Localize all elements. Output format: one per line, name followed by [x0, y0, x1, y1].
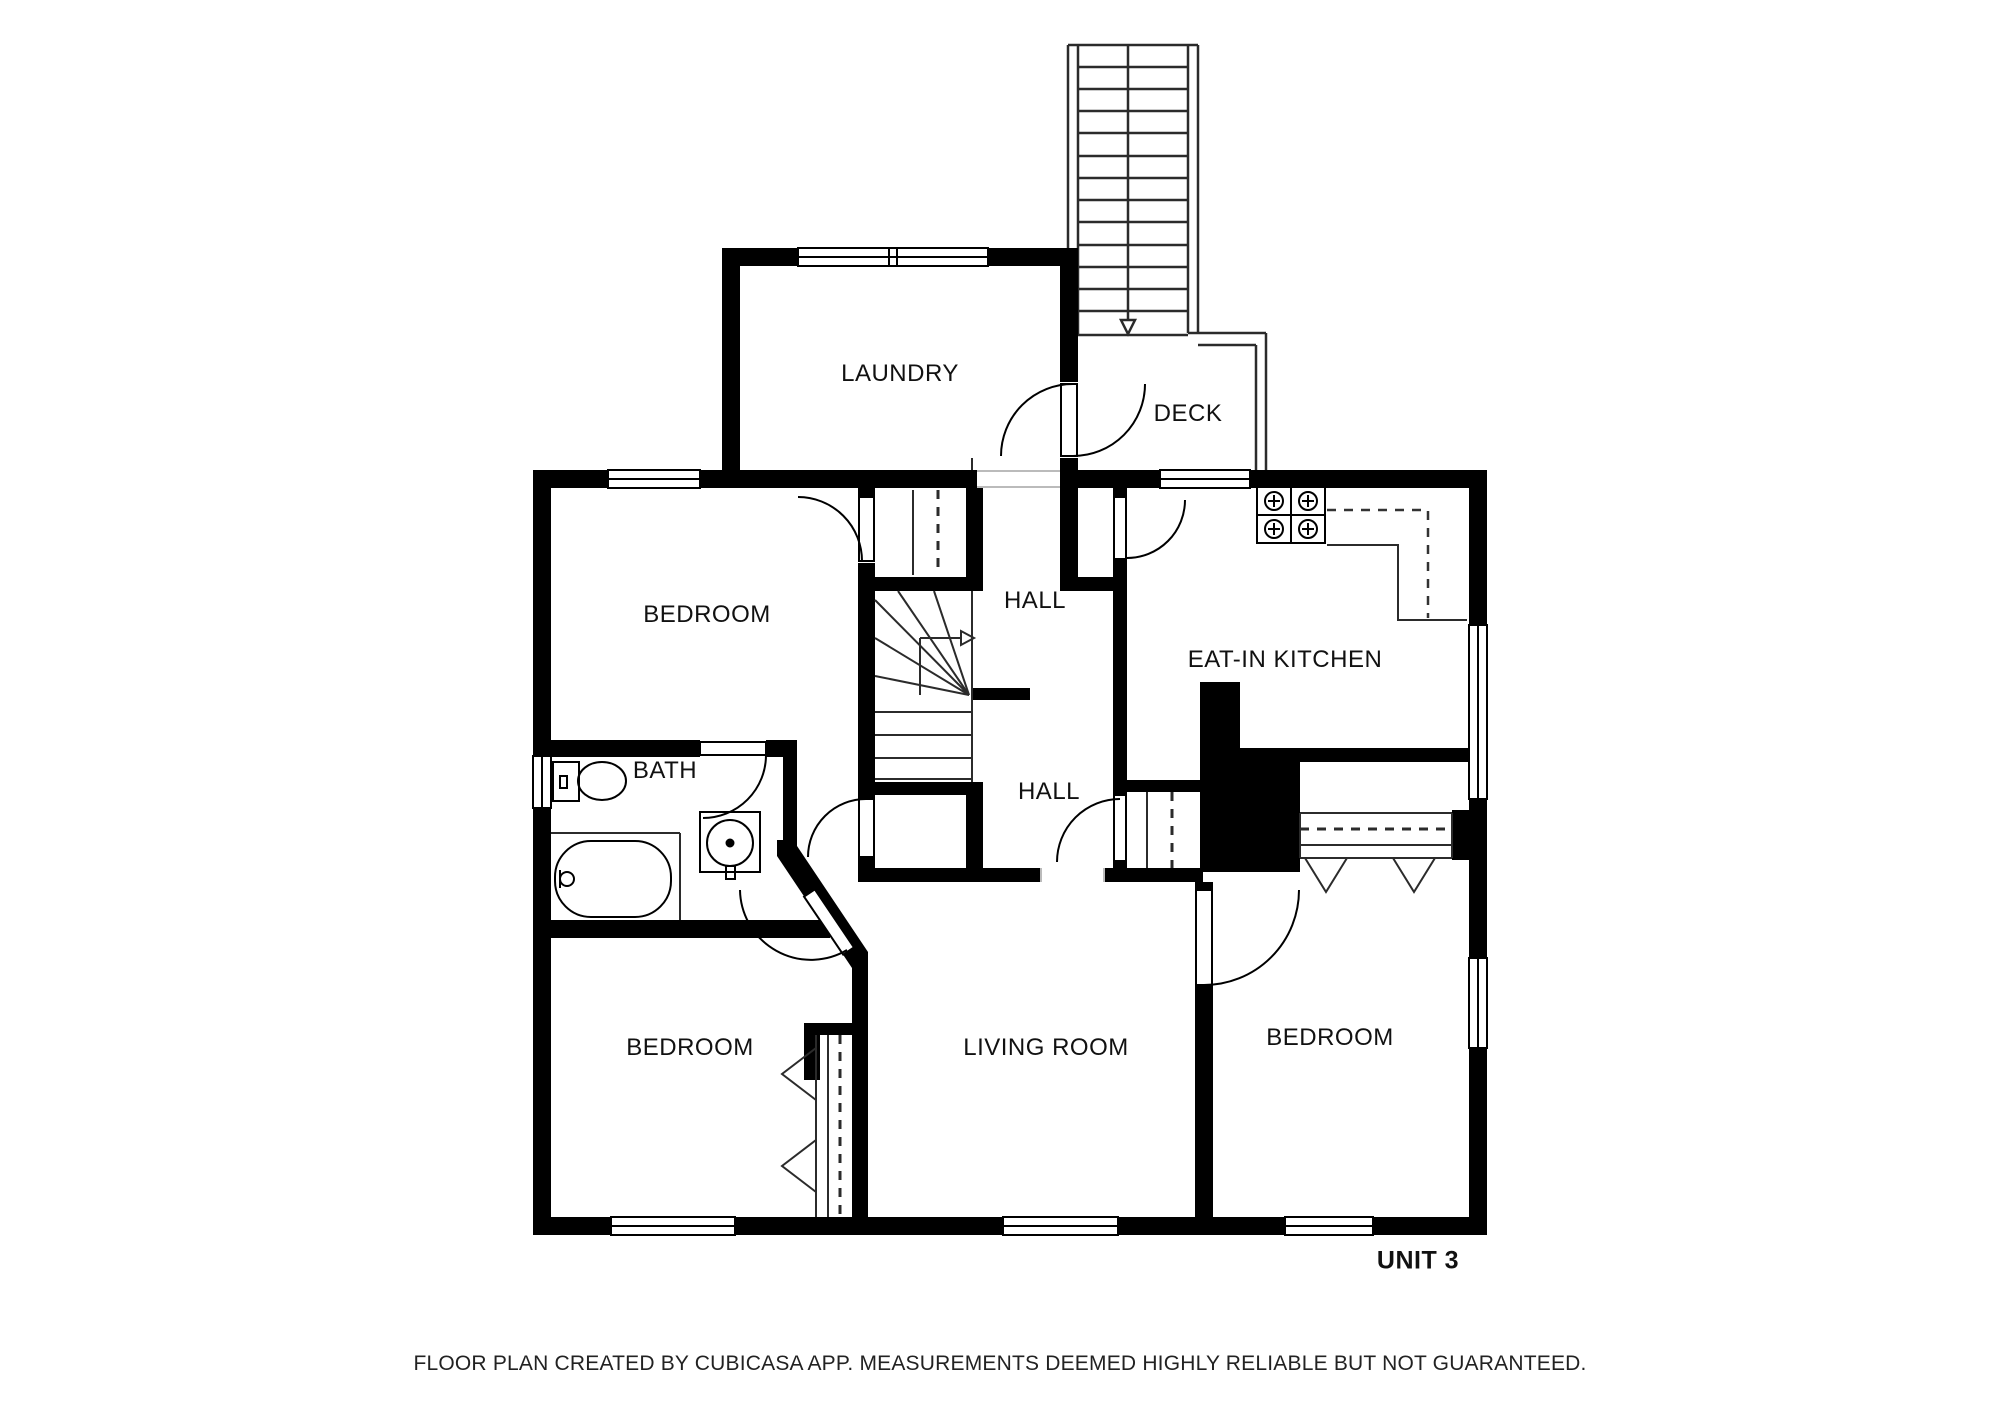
room-label-hall-lower: HALL: [1018, 778, 1080, 806]
door-leaf-kitchen: [1114, 497, 1126, 559]
room-label-kitchen: EAT-IN KITCHEN: [1188, 646, 1383, 674]
door-leaf-hall-closet: [1114, 795, 1126, 861]
window-bath: [533, 756, 551, 808]
room-label-hall-upper: HALL: [1004, 587, 1066, 615]
door-leaf-bedroom-right: [1196, 890, 1212, 985]
door-leaf-vestibule: [859, 799, 874, 857]
window-laundry: [798, 248, 988, 266]
opening-laundry-hall: [977, 470, 1060, 488]
stove: [1257, 487, 1325, 543]
unit-label: UNIT 3: [1377, 1247, 1459, 1276]
window-bedroom-r-bottom: [1285, 1217, 1373, 1235]
floor-plan-svg: [0, 0, 2000, 1414]
room-label-deck: DECK: [1154, 400, 1223, 428]
window-bedroom-r-right: [1469, 958, 1487, 1048]
opening-hall-living: [1040, 868, 1105, 882]
floor-plan-page: ©2025BAYEAST ASSOCIATION OF REALTORS®: [0, 0, 2000, 1414]
room-label-bath: BATH: [633, 757, 697, 785]
room-label-bedroom-bl: BEDROOM: [626, 1034, 754, 1062]
room-label-bedroom-tl: BEDROOM: [643, 601, 771, 629]
room-label-bedroom-right: BEDROOM: [1266, 1024, 1394, 1052]
plan-background: [0, 0, 2000, 1414]
window-kitchen-deck: [1160, 470, 1250, 488]
window-bedroom-top: [608, 470, 700, 488]
disclaimer-text: FLOOR PLAN CREATED BY CUBICASA APP. MEAS…: [0, 1352, 2000, 1376]
window-bedroom-bl: [611, 1217, 735, 1235]
room-label-living-room: LIVING ROOM: [963, 1034, 1129, 1062]
room-label-laundry: LAUNDRY: [841, 360, 959, 388]
door-leaf-bath: [700, 742, 766, 755]
door-leaf-laundry-deck: [1061, 384, 1077, 456]
window-kitchen-right: [1469, 625, 1487, 799]
window-living: [1003, 1217, 1118, 1235]
